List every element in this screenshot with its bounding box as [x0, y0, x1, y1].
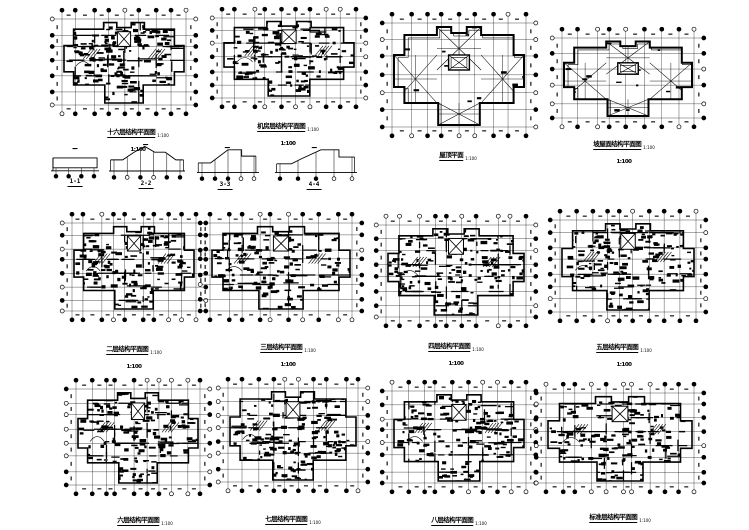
plan-11-drawing: [378, 378, 540, 496]
plan-title-suffix: 1:100: [465, 156, 477, 161]
section-1-drawing: [50, 147, 100, 181]
plan-7-drawing: [372, 212, 540, 330]
plan-title-text: 机房层结构平面图: [257, 122, 305, 132]
plan-title-suffix: 1:100: [304, 348, 316, 353]
plan-title-scale: 1:100: [126, 365, 141, 371]
plan-title-text: 二层结构平面图: [106, 345, 148, 355]
section-2-drawing: [108, 143, 186, 183]
plan-6-drawing: [196, 210, 366, 324]
plan-1-drawing: [48, 6, 200, 118]
plan-title-text: 坡屋面结构平面图: [593, 140, 641, 150]
plan-title-suffix: 1:100: [157, 133, 169, 138]
plan-title-text: 八层结构平面图: [431, 516, 473, 526]
plan-title-text: 三层结构平面图: [260, 343, 302, 353]
plan-7-title: 四层结构平面图1:1001:100: [428, 335, 484, 369]
section-4-drawing: [274, 146, 358, 184]
plan-title-text: 屋顶平面: [439, 151, 463, 161]
plan-10-title: 七层结构平面图1:1001:100: [265, 508, 321, 530]
plan-6-title: 三层结构平面图1:1001:100: [260, 336, 316, 370]
plan-12-drawing: [532, 380, 708, 496]
plan-title-text: 六层结构平面图: [117, 516, 159, 526]
plan-5-title: 二层结构平面图1:1001:100: [106, 338, 162, 372]
plan-10-drawing: [214, 375, 372, 495]
plan-title-suffix: 1:100: [643, 145, 655, 150]
section-3-label: 3-3: [218, 181, 233, 190]
plan-9-title: 六层结构平面图1:1001:100: [117, 509, 173, 530]
plan-title-text: 七层结构平面图: [265, 515, 307, 525]
plan-3-drawing: [378, 10, 540, 140]
plan-title-suffix: 1:100: [475, 521, 487, 526]
plan-2-drawing: [208, 5, 370, 111]
section-4-label: 4-4: [307, 181, 322, 190]
plan-title-text: 十六层结构平面图: [107, 128, 155, 138]
section-2-label: 2-2: [139, 180, 154, 189]
plan-title-scale: 1:100: [448, 362, 463, 368]
plan-title-suffix: 1:100: [640, 348, 652, 353]
plan-8-title: 五层结构平面图1:1001:100: [596, 336, 652, 370]
plan-4-title: 坡屋面结构平面图1:1001:100: [593, 133, 655, 167]
plan-title-suffix: 1:100: [307, 127, 319, 132]
drawing-sheet: 十六层结构平面图1:1001:100机房层结构平面图1:1001:100屋顶平面…: [0, 0, 749, 530]
plan-title-scale: 1:100: [280, 363, 295, 369]
plan-4-drawing: [548, 25, 708, 131]
plan-8-drawing: [546, 207, 710, 325]
section-3-drawing: [196, 146, 260, 184]
plan-title-suffix: 1:100: [472, 347, 484, 352]
section-1-label: 1-1: [68, 178, 83, 187]
plan-title-text: 五层结构平面图: [596, 343, 638, 353]
plan-title-suffix: 1:100: [309, 520, 321, 525]
plan-title-scale: 1:100: [616, 363, 631, 369]
plan-title-text: 标准层结构平面图: [589, 513, 637, 523]
plan-2-title: 机房层结构平面图1:1001:100: [257, 115, 319, 149]
plan-title-suffix: 1:100: [150, 350, 162, 355]
plan-5-drawing: [58, 210, 210, 324]
plan-title-scale: 1:100: [616, 160, 631, 166]
plan-title-suffix: 1:100: [161, 521, 173, 526]
plan-11-title: 八层结构平面图1:1001:100: [431, 509, 487, 530]
plan-title-suffix: 1:100: [639, 518, 651, 523]
plan-title-text: 四层结构平面图: [428, 342, 470, 352]
plan-3-title: 屋顶平面1:100: [439, 144, 477, 161]
plan-9-drawing: [62, 376, 214, 498]
plan-12-title: 标准层结构平面图1:1001:100: [589, 506, 651, 530]
